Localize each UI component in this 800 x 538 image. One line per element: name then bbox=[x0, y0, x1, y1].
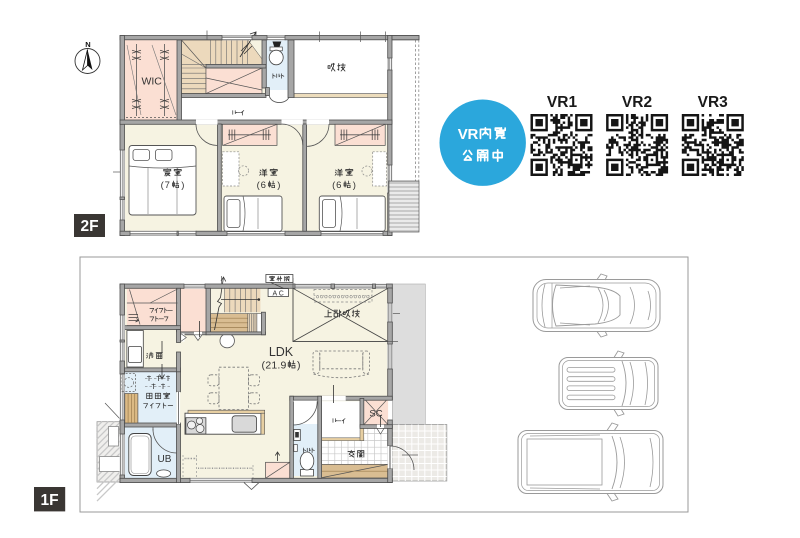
svg-text:1F: 1F bbox=[41, 492, 59, 509]
svg-text:VR2: VR2 bbox=[622, 94, 652, 111]
svg-text:SC: SC bbox=[369, 409, 382, 420]
svg-text:7: 7 bbox=[165, 180, 170, 191]
svg-text:): ) bbox=[297, 359, 301, 371]
svg-text:UB: UB bbox=[158, 454, 172, 465]
svg-text:6: 6 bbox=[261, 180, 266, 191]
svg-text:LDK: LDK bbox=[269, 345, 294, 359]
svg-text:): ) bbox=[353, 180, 356, 191]
svg-text:V: V bbox=[458, 126, 468, 143]
svg-text:A C: A C bbox=[273, 290, 284, 297]
svg-text:): ) bbox=[277, 180, 280, 191]
svg-text:): ) bbox=[181, 180, 184, 191]
svg-text:6: 6 bbox=[336, 180, 341, 191]
svg-text:VR3: VR3 bbox=[698, 94, 729, 111]
svg-text:WIC: WIC bbox=[141, 76, 162, 88]
svg-text:N: N bbox=[85, 40, 90, 49]
svg-text:2F: 2F bbox=[80, 218, 98, 235]
svg-text:VR1: VR1 bbox=[547, 94, 578, 111]
svg-text:9: 9 bbox=[280, 359, 286, 371]
svg-text:R: R bbox=[467, 126, 478, 143]
